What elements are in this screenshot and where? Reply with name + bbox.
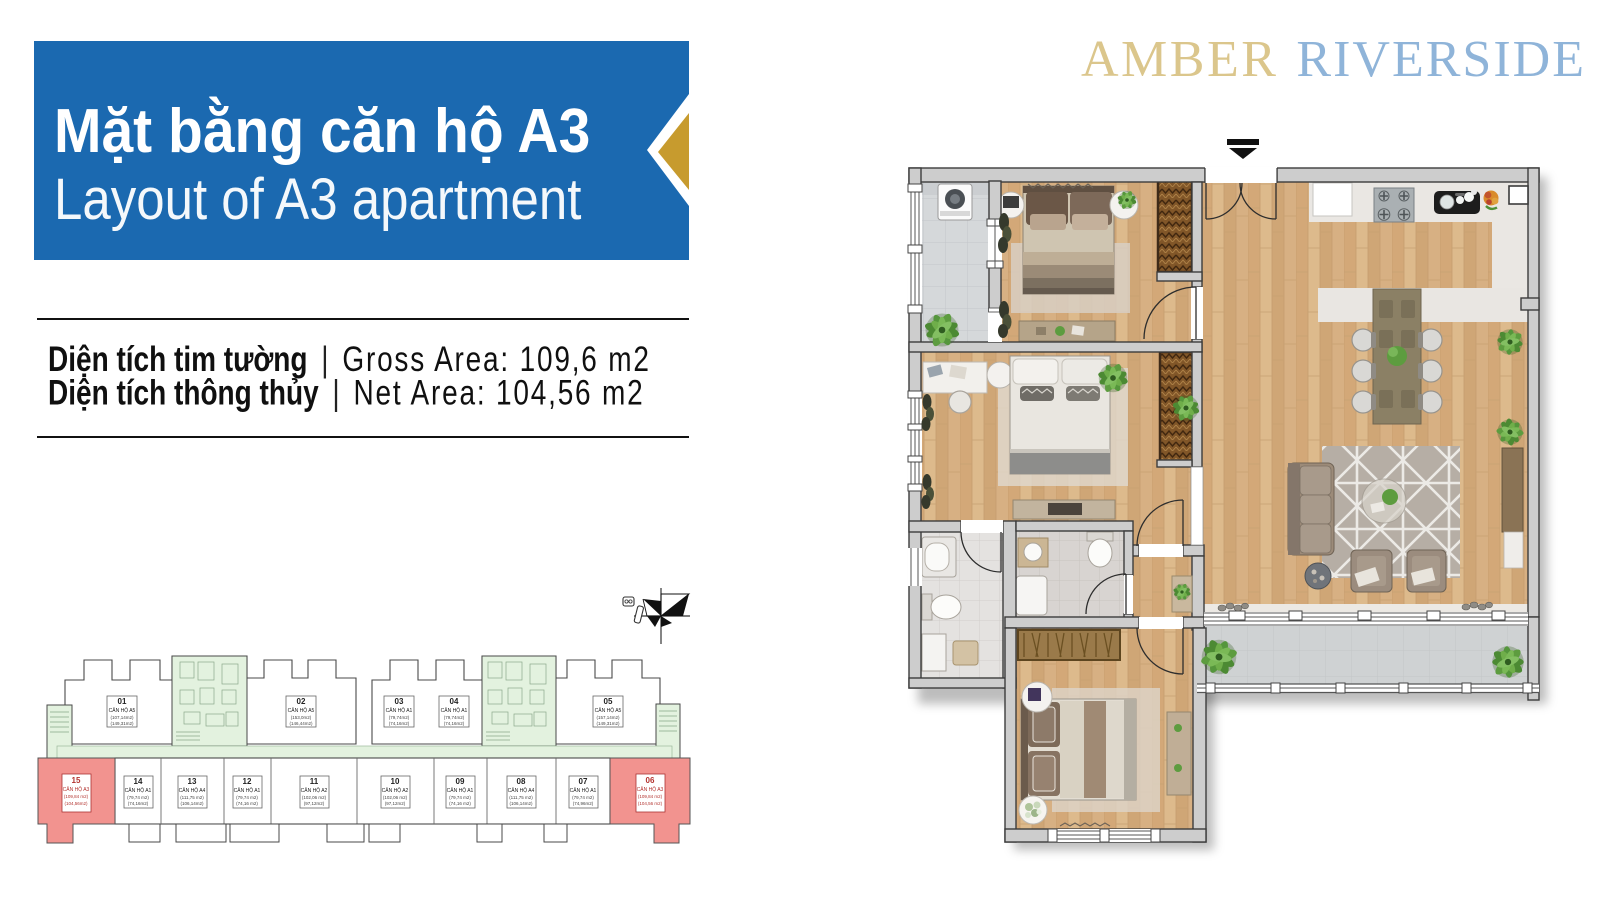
svg-text:03: 03 — [395, 697, 404, 706]
svg-text:(109,84 m2): (109,84 m2) — [638, 794, 663, 799]
svg-text:13: 13 — [188, 777, 197, 786]
svg-text:CĂN HỘ A4: CĂN HỘ A4 — [179, 787, 206, 794]
svg-text:(79,74 m2): (79,74 m2) — [449, 795, 471, 800]
svg-text:(111,75 m2): (111,75 m2) — [509, 795, 533, 800]
svg-text:(79,74 m2): (79,74 m2) — [572, 795, 594, 800]
svg-text:(79,74m2): (79,74m2) — [444, 715, 465, 720]
svg-text:15: 15 — [72, 776, 81, 785]
svg-text:(74,16m2): (74,16m2) — [128, 801, 149, 806]
svg-text:CĂN HỘ A5: CĂN HỘ A5 — [595, 707, 622, 714]
svg-text:CĂN HỘ A5: CĂN HỘ A5 — [288, 707, 315, 714]
svg-text:(97,12m2): (97,12m2) — [304, 801, 325, 806]
svg-text:CĂN HỘ A3: CĂN HỘ A3 — [637, 786, 664, 793]
svg-text:(149,31m2): (149,31m2) — [596, 721, 620, 726]
svg-text:(104,56m2): (104,56m2) — [64, 801, 88, 806]
svg-text:(97,12m2): (97,12m2) — [385, 801, 406, 806]
svg-text:(104,56 m2): (104,56 m2) — [638, 801, 663, 806]
svg-text:CĂN HỘ A1: CĂN HỘ A1 — [447, 787, 474, 794]
svg-text:10: 10 — [391, 777, 400, 786]
svg-text:CĂN HỘ A5: CĂN HỘ A5 — [109, 707, 136, 714]
svg-text:(74,16 m2): (74,16 m2) — [449, 801, 471, 806]
svg-text:(74,16m2): (74,16m2) — [444, 721, 465, 726]
svg-text:09: 09 — [456, 777, 465, 786]
svg-text:CĂN HỘ A1: CĂN HỘ A1 — [386, 707, 413, 714]
svg-text:07: 07 — [579, 777, 588, 786]
svg-text:CĂN HỘ A1: CĂN HỘ A1 — [234, 787, 261, 794]
svg-text:(153,0m2): (153,0m2) — [291, 715, 312, 720]
svg-text:(79,74 m2): (79,74 m2) — [127, 795, 149, 800]
svg-text:(106,14m2): (106,14m2) — [180, 801, 204, 806]
svg-text:(107,14m2): (107,14m2) — [110, 715, 134, 720]
svg-text:CĂN HỘ A1: CĂN HỘ A1 — [570, 787, 597, 794]
svg-text:04: 04 — [450, 697, 459, 706]
svg-text:(102,06 m2): (102,06 m2) — [302, 795, 327, 800]
svg-text:(74,96m2): (74,96m2) — [573, 801, 594, 806]
svg-text:CĂN HỘ A2: CĂN HỘ A2 — [382, 787, 409, 794]
svg-text:01: 01 — [118, 697, 127, 706]
svg-text:(79,74m2): (79,74m2) — [389, 715, 410, 720]
svg-text:(109,84 m2): (109,84 m2) — [64, 794, 89, 799]
svg-text:(74,16 m2): (74,16 m2) — [236, 801, 258, 806]
svg-text:CĂN HỘ A2: CĂN HỘ A2 — [301, 787, 328, 794]
svg-text:11: 11 — [310, 777, 319, 786]
svg-text:CĂN HỘ A1: CĂN HỘ A1 — [441, 707, 468, 714]
svg-text:05: 05 — [604, 697, 613, 706]
svg-text:CĂN HỘ A1: CĂN HỘ A1 — [125, 787, 152, 794]
svg-text:14: 14 — [134, 777, 143, 786]
svg-text:(157,14m2): (157,14m2) — [596, 715, 620, 720]
svg-text:(149,31m2): (149,31m2) — [110, 721, 134, 726]
svg-text:02: 02 — [297, 697, 306, 706]
svg-text:(79,74 m2): (79,74 m2) — [236, 795, 258, 800]
svg-text:(146,44m2): (146,44m2) — [289, 721, 313, 726]
svg-text:(106,14m2): (106,14m2) — [509, 801, 533, 806]
svg-text:12: 12 — [243, 777, 252, 786]
svg-text:(74,16m2): (74,16m2) — [389, 721, 410, 726]
svg-text:CĂN HỘ A4: CĂN HỘ A4 — [508, 787, 535, 794]
svg-text:08: 08 — [517, 777, 526, 786]
svg-text:(102,06 m2): (102,06 m2) — [383, 795, 408, 800]
svg-text:(111,75 m2): (111,75 m2) — [180, 795, 204, 800]
svg-text:CĂN HỘ A3: CĂN HỘ A3 — [63, 786, 90, 793]
svg-text:06: 06 — [646, 776, 655, 785]
